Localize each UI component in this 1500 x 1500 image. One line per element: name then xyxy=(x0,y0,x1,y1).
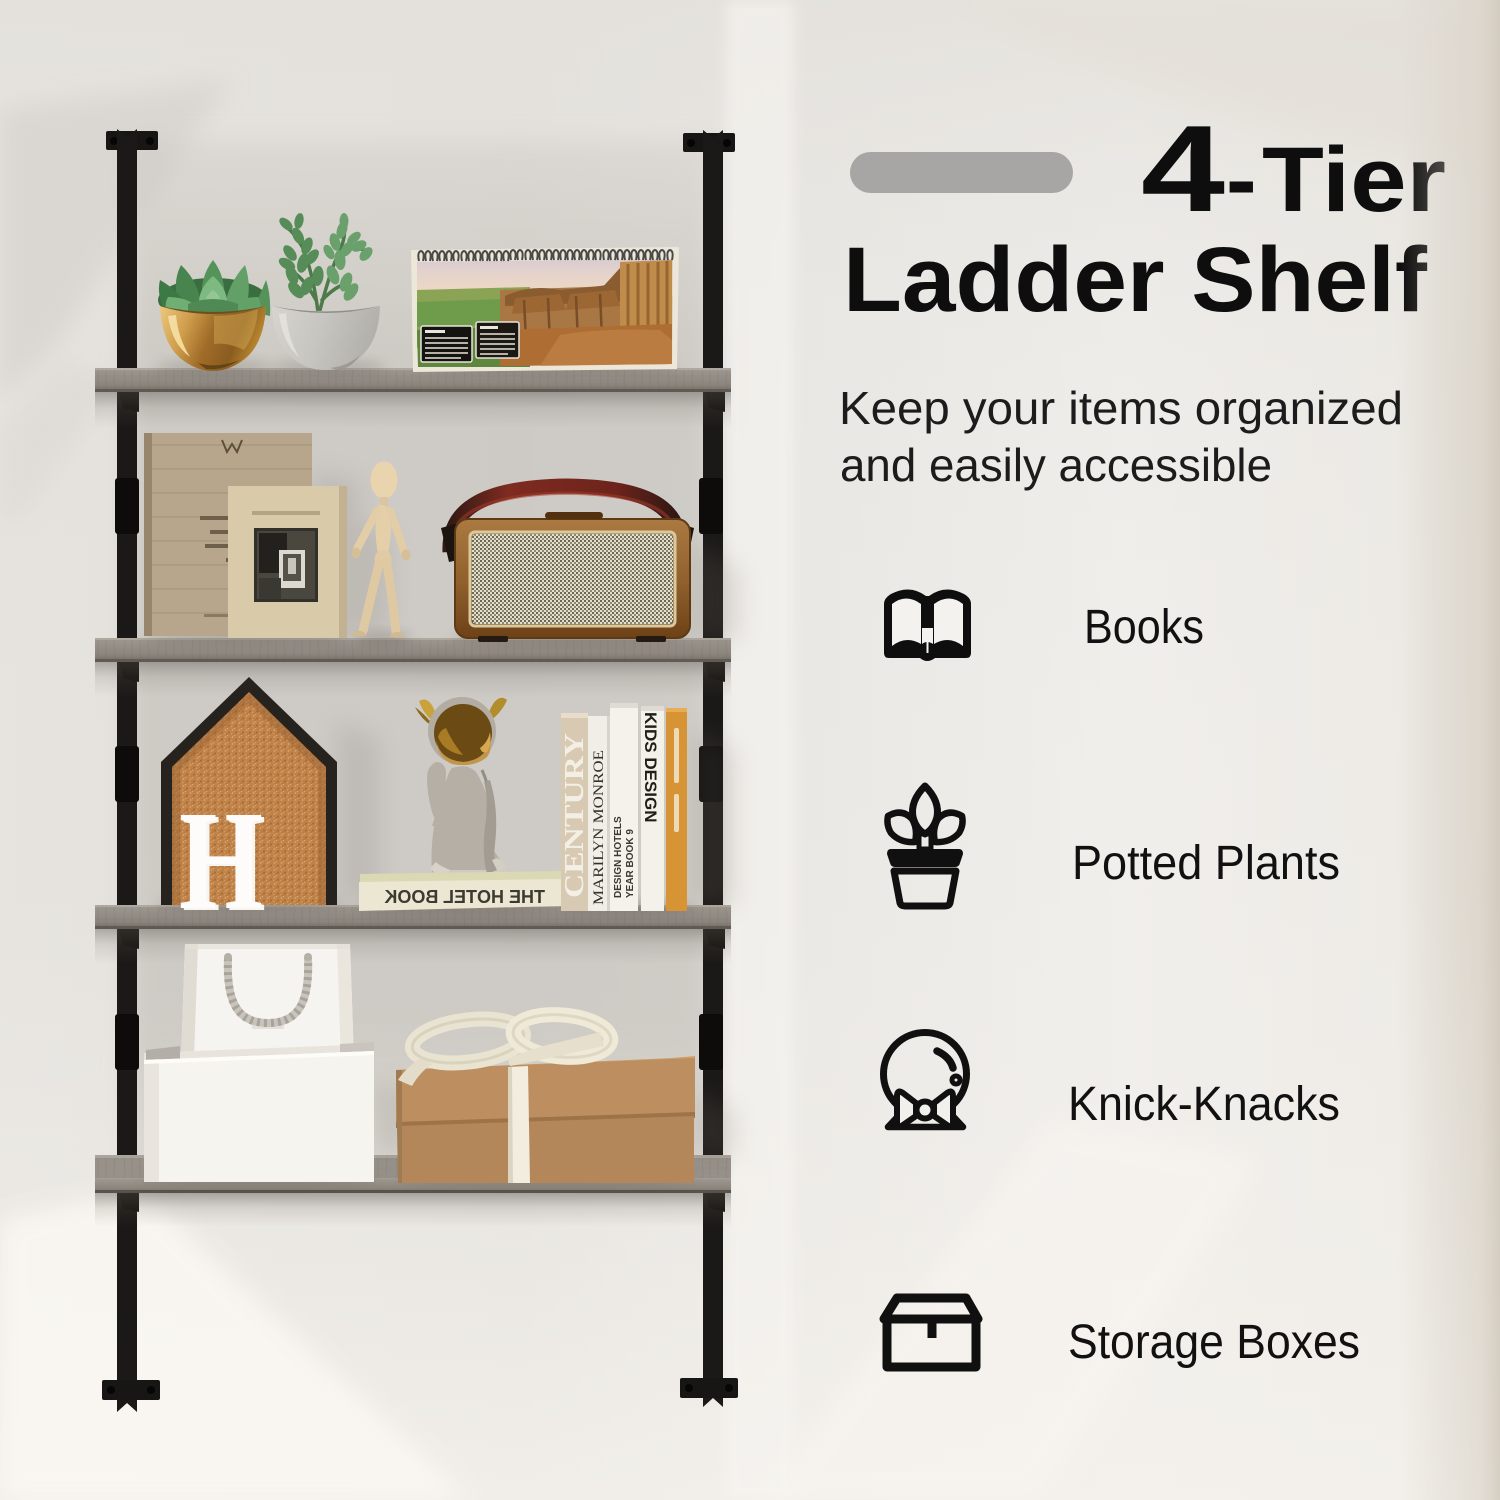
svg-text:H: H xyxy=(179,783,263,940)
svg-text:MARILYN MONROE: MARILYN MONROE xyxy=(591,750,607,905)
svg-text:Books: Books xyxy=(1084,601,1204,654)
svg-text:and easily accessible: and easily accessible xyxy=(840,439,1272,491)
svg-text:YEAR BOOK 9: YEAR BOOK 9 xyxy=(625,829,636,898)
svg-text:Potted Plants: Potted Plants xyxy=(1072,837,1340,890)
svg-text:Ladder Shelf: Ladder Shelf xyxy=(843,229,1427,331)
svg-text:4: 4 xyxy=(1141,101,1225,238)
svg-text:CENTURY: CENTURY xyxy=(559,733,589,898)
svg-text:Keep your items organized: Keep your items organized xyxy=(839,382,1403,434)
svg-text:Knick-Knacks: Knick-Knacks xyxy=(1068,1078,1340,1131)
svg-text:KIDS DESIGN: KIDS DESIGN xyxy=(641,712,660,823)
svg-text:THE HOTEL BOOK: THE HOTEL BOOK xyxy=(384,887,545,907)
svg-text:DESIGN HOTELS: DESIGN HOTELS xyxy=(613,816,624,898)
svg-text:-: - xyxy=(1226,129,1257,231)
svg-text:Storage Boxes: Storage Boxes xyxy=(1068,1316,1360,1369)
